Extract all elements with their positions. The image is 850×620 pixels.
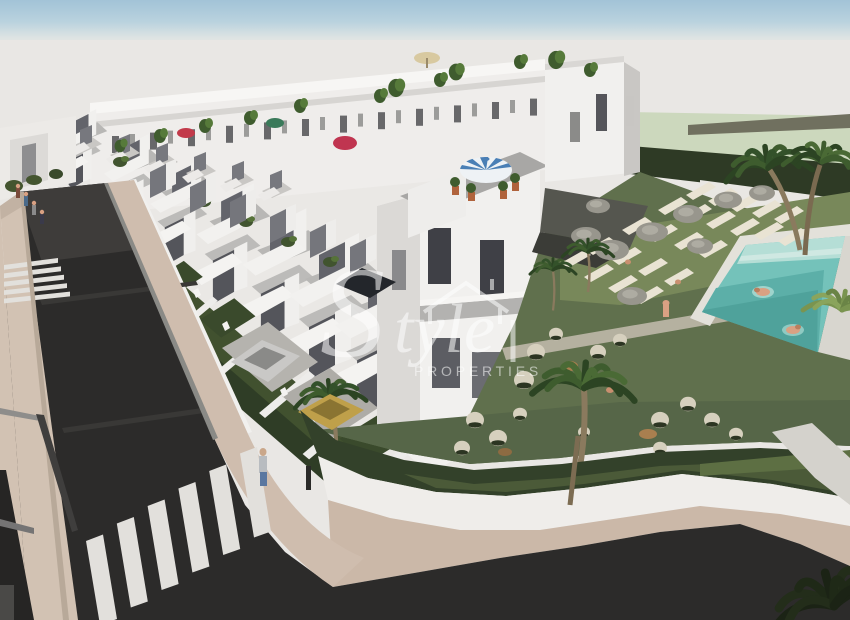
svg-text:PROPERTIES: PROPERTIES [414,363,542,379]
svg-text:tyle: tyle [394,291,495,368]
svg-text:S: S [320,241,385,385]
